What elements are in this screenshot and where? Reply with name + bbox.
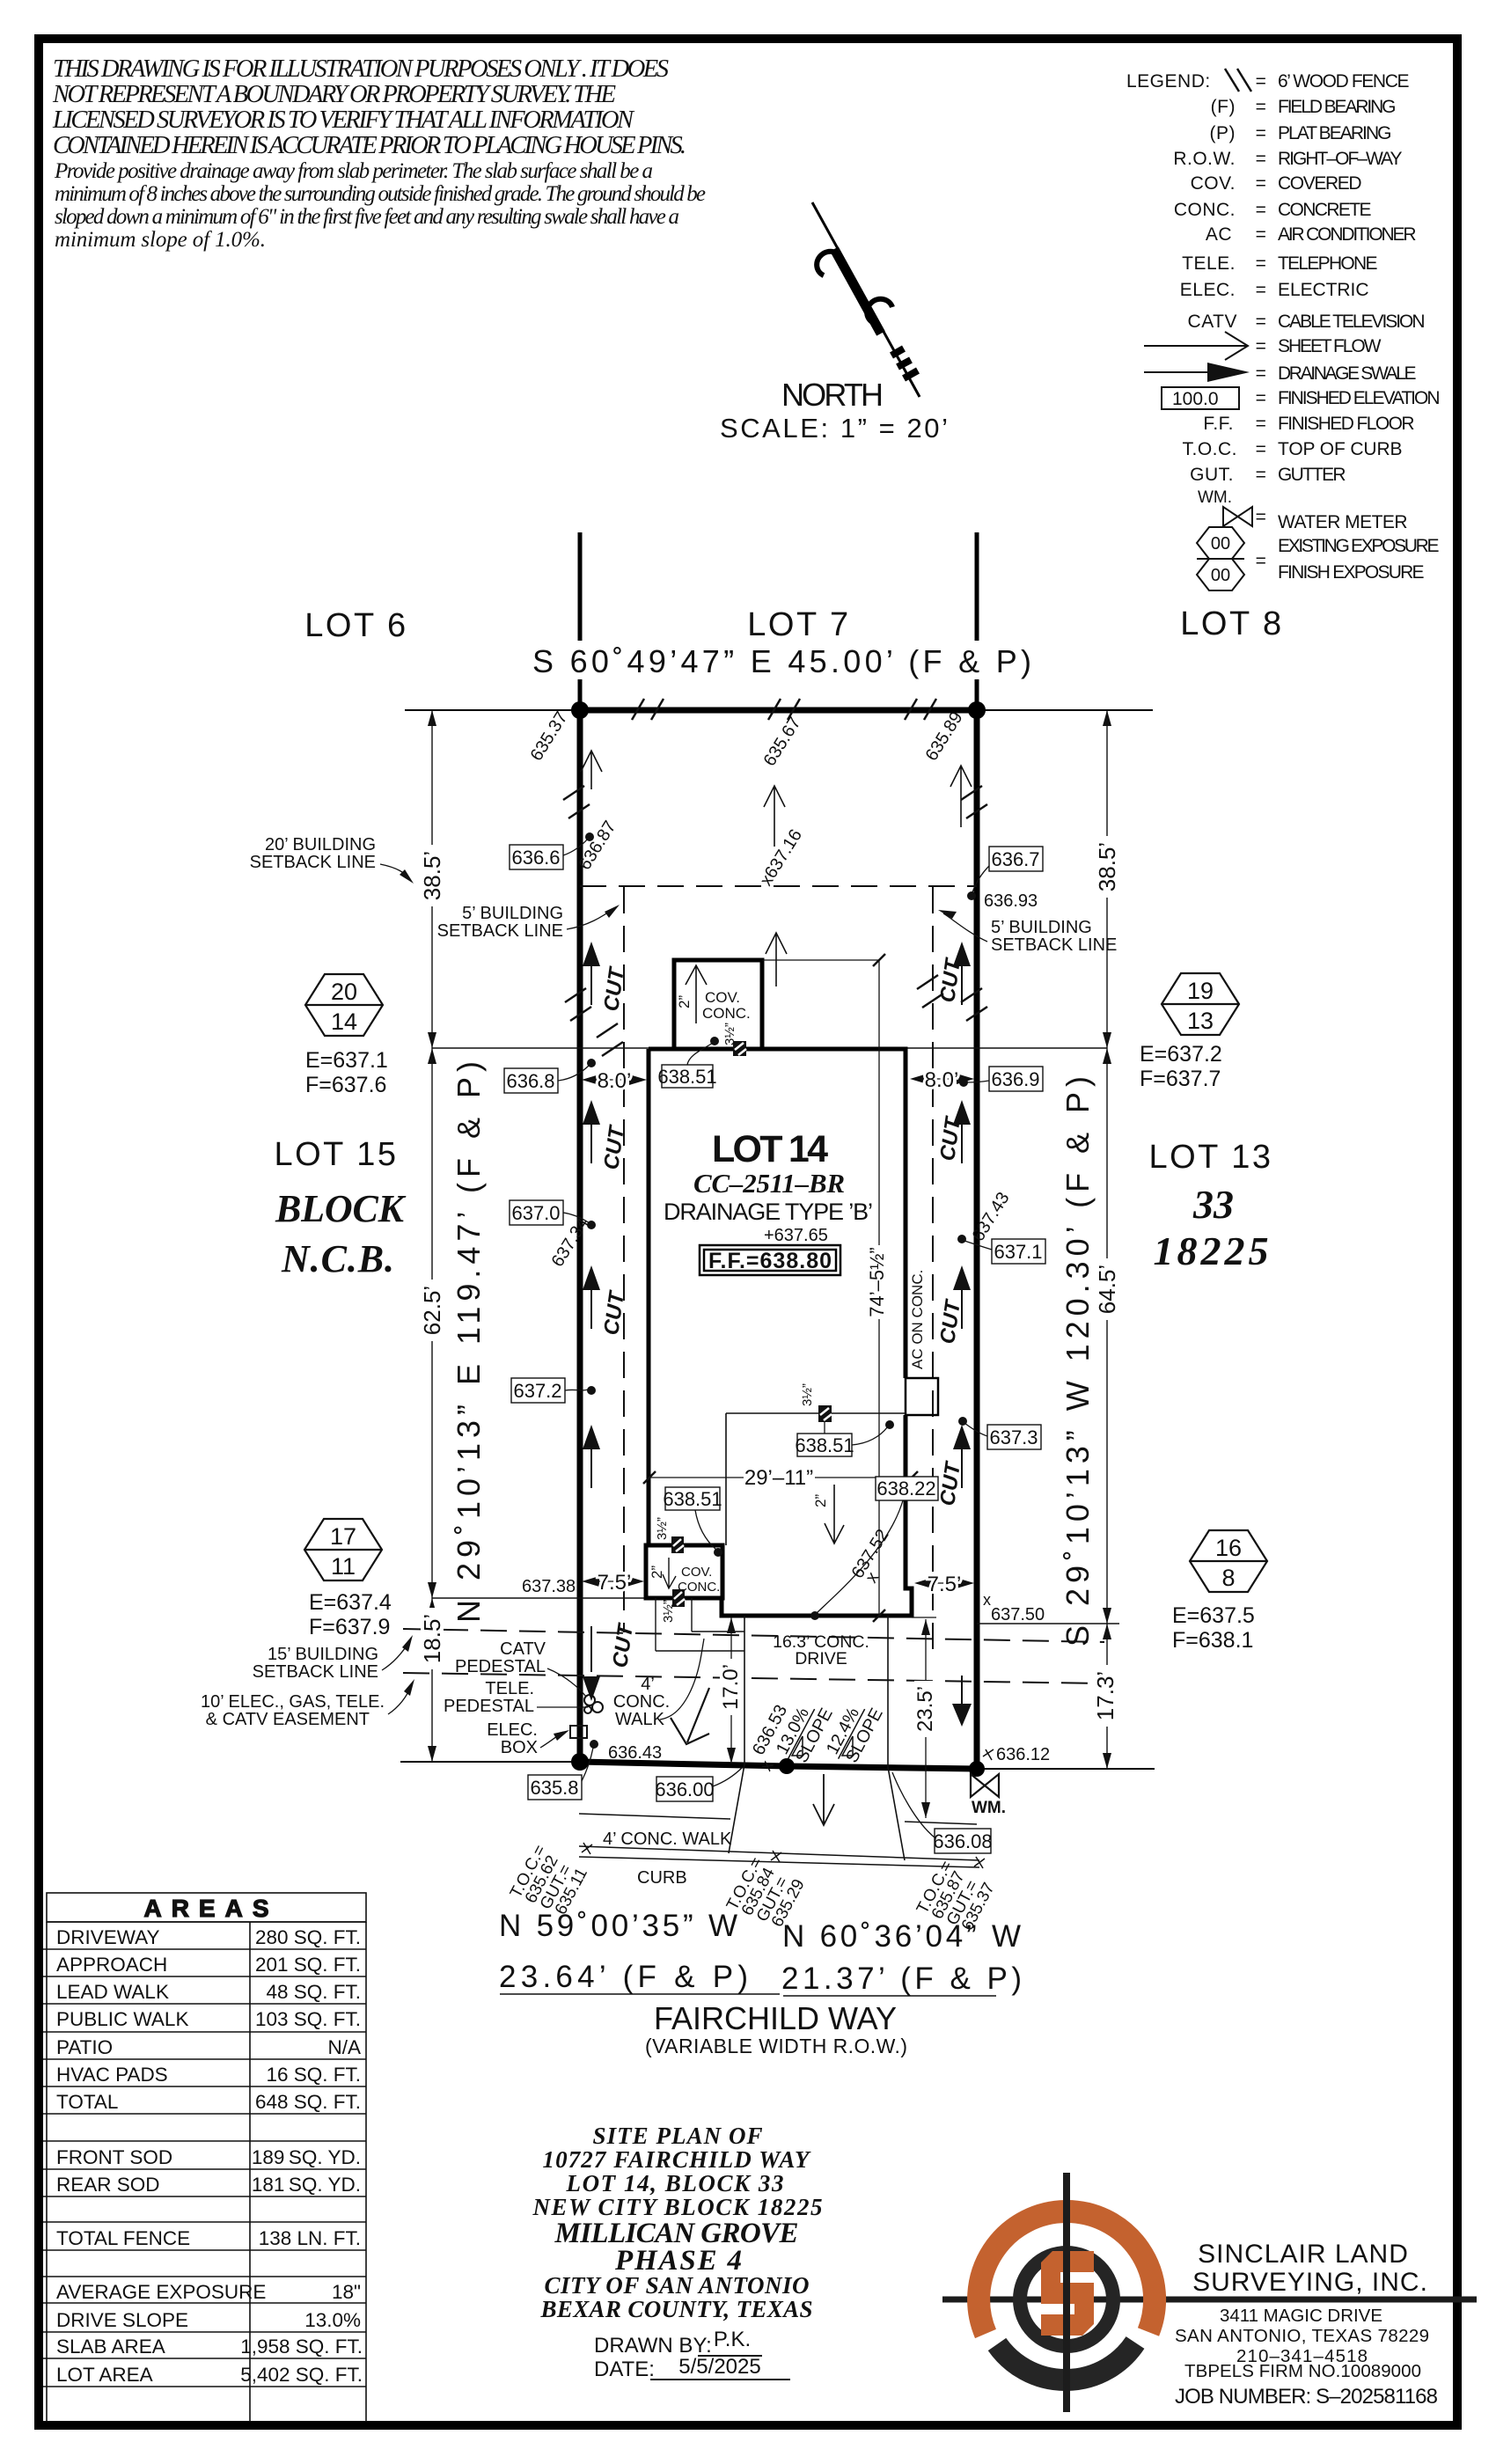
svg-text:636.00: 636.00: [655, 1778, 714, 1800]
svg-text:FIELD BEARING: FIELD BEARING: [1278, 97, 1397, 117]
svg-text:8: 8: [1221, 1565, 1235, 1591]
svg-text:BEXAR COUNTY, TEXAS: BEXAR COUNTY, TEXAS: [540, 2296, 813, 2322]
svg-text:E=637.2: E=637.2: [1140, 1042, 1222, 1067]
svg-text:PEDESTAL: PEDESTAL: [455, 1657, 546, 1676]
svg-text:CONTAINED HEREIN IS ACCURATE P: CONTAINED HEREIN IS ACCURATE PRIOR TO PL…: [53, 132, 686, 159]
svg-text:LOT AREA: LOT AREA: [56, 2364, 153, 2386]
svg-text:F=637.6: F=637.6: [305, 1073, 386, 1097]
svg-text:636.9: 636.9: [991, 1068, 1039, 1090]
svg-text:N 29˚10’13” E 119.47’ (F & P): N 29˚10’13” E 119.47’ (F & P): [451, 1060, 487, 1623]
svg-text:(VARIABLE WIDTH R.O.W.): (VARIABLE WIDTH R.O.W.): [645, 2035, 909, 2057]
svg-text:=: =: [1256, 414, 1267, 434]
svg-text:637.50: 637.50: [991, 1605, 1045, 1624]
svg-text:=: =: [1256, 551, 1267, 571]
svg-text:636.43: 636.43: [608, 1743, 662, 1763]
svg-text:CITY OF SAN ANTONIO: CITY OF SAN ANTONIO: [545, 2272, 810, 2299]
svg-text:minimum slope of 1.0%.: minimum slope of 1.0%.: [55, 228, 266, 252]
svg-text:18.5’: 18.5’: [419, 1614, 445, 1663]
svg-text:29’–11”: 29’–11”: [744, 1466, 813, 1490]
svg-text:TOTAL FENCE: TOTAL FENCE: [56, 2227, 190, 2249]
svg-text:SETBACK LINE: SETBACK LINE: [253, 1662, 378, 1682]
svg-text:APPROACH: APPROACH: [56, 1954, 167, 1976]
svg-text:COVERED: COVERED: [1278, 173, 1362, 194]
svg-text:6’ WOOD FENCE: 6’ WOOD FENCE: [1278, 71, 1410, 92]
svg-text:S 60˚49’47” E 45.00’ (F & P): S 60˚49’47” E 45.00’ (F & P): [532, 643, 1034, 679]
svg-text:WATER METER: WATER METER: [1278, 512, 1408, 532]
svg-text:AC: AC: [1206, 224, 1232, 245]
svg-text:E=637.1: E=637.1: [305, 1048, 388, 1073]
svg-text:R.O.W.: R.O.W.: [1173, 149, 1236, 169]
svg-text:JOB NUMBER: S–202581168: JOB NUMBER: S–202581168: [1175, 2385, 1439, 2409]
svg-text:7.5’: 7.5’: [928, 1573, 962, 1596]
svg-text:636.08: 636.08: [933, 1830, 992, 1852]
svg-text:637.3: 637.3: [989, 1426, 1038, 1448]
svg-text:33: 33: [1192, 1182, 1234, 1227]
svg-text:00: 00: [1211, 534, 1230, 554]
svg-text:5’ BUILDING: 5’ BUILDING: [462, 904, 563, 923]
svg-text:(P): (P): [1210, 123, 1236, 143]
svg-text:11: 11: [331, 1553, 356, 1580]
svg-text:201 SQ. FT.: 201 SQ. FT.: [255, 1954, 361, 1976]
svg-text:E=637.5: E=637.5: [1172, 1603, 1255, 1628]
svg-text:LOT 13: LOT 13: [1148, 1139, 1272, 1176]
svg-text:EXISTING EXPOSURE: EXISTING EXPOSURE: [1278, 536, 1440, 556]
svg-text:5,402 SQ. FT.: 5,402 SQ. FT.: [240, 2364, 363, 2386]
svg-text:3½”: 3½”: [800, 1383, 815, 1406]
svg-text:E=637.4: E=637.4: [309, 1590, 392, 1615]
svg-text:GUT.: GUT.: [1190, 465, 1234, 485]
svg-text:64.5’: 64.5’: [1094, 1265, 1120, 1314]
svg-text:16: 16: [1215, 1535, 1242, 1561]
svg-text:280 SQ. FT.: 280 SQ. FT.: [255, 1926, 361, 1948]
svg-text:TOTAL: TOTAL: [56, 2091, 118, 2113]
svg-text:189 SQ. YD.: 189 SQ. YD.: [252, 2146, 361, 2168]
svg-text:17: 17: [330, 1523, 356, 1550]
svg-text:CATV: CATV: [1188, 312, 1237, 332]
svg-text:138 LN. FT.: 138 LN. FT.: [259, 2227, 361, 2249]
svg-text:636.93: 636.93: [984, 891, 1038, 911]
svg-text:HVAC PADS: HVAC PADS: [56, 2064, 168, 2086]
svg-text:N.C.B.: N.C.B.: [281, 1237, 394, 1280]
svg-text:NORTH: NORTH: [781, 377, 887, 413]
svg-text:8.0’: 8.0’: [925, 1068, 959, 1092]
svg-text:20’ BUILDING: 20’ BUILDING: [265, 835, 376, 854]
svg-text:23.5’: 23.5’: [913, 1686, 937, 1732]
svg-text:=: =: [1256, 465, 1267, 485]
svg-text:AREAS: AREAS: [143, 1895, 278, 1922]
svg-text:=: =: [1256, 363, 1267, 384]
svg-text:14: 14: [331, 1008, 357, 1035]
svg-text:FRONT SOD: FRONT SOD: [56, 2146, 172, 2168]
svg-text:FINISHED ELEVATION: FINISHED ELEVATION: [1278, 388, 1441, 408]
svg-text:2”: 2”: [812, 1494, 829, 1507]
svg-text:CONC.: CONC.: [613, 1692, 670, 1712]
svg-text:DRAINAGE SWALE: DRAINAGE SWALE: [1278, 363, 1417, 384]
svg-text:PLAT BEARING: PLAT BEARING: [1278, 123, 1392, 143]
svg-text:38.5’: 38.5’: [419, 851, 445, 900]
svg-text:=: =: [1256, 173, 1267, 194]
svg-text:21.37’ (F & P): 21.37’ (F & P): [781, 1962, 1024, 1996]
svg-text:=: =: [1256, 200, 1267, 220]
svg-text:635.8: 635.8: [530, 1777, 578, 1799]
svg-text:636.6: 636.6: [511, 847, 560, 869]
svg-text:LEAD WALK: LEAD WALK: [56, 1981, 169, 2003]
svg-text:PUBLIC WALK: PUBLIC WALK: [56, 2008, 188, 2030]
svg-text:4’ CONC. WALK: 4’ CONC. WALK: [603, 1830, 732, 1849]
svg-text:CURB: CURB: [637, 1868, 687, 1888]
svg-text:637.2: 637.2: [513, 1380, 561, 1402]
svg-text:THIS DRAWING IS FOR ILLUSTRATI: THIS DRAWING IS FOR ILLUSTRATION PURPOSE…: [53, 55, 669, 83]
svg-text:NEW CITY BLOCK 18225: NEW CITY BLOCK 18225: [532, 2194, 823, 2220]
svg-text:WM.: WM.: [972, 1799, 1006, 1817]
svg-text:NOT REPRESENT A BOUNDARY OR PR: NOT REPRESENT A BOUNDARY OR PROPERTY SUR…: [52, 81, 616, 108]
svg-text:PATIO: PATIO: [56, 2036, 113, 2058]
svg-text:FINISH EXPOSURE: FINISH EXPOSURE: [1278, 562, 1425, 583]
svg-text:=: =: [1256, 280, 1267, 300]
svg-text:T.O.C.: T.O.C.: [1182, 439, 1237, 459]
svg-text:62.5’: 62.5’: [419, 1286, 445, 1335]
svg-text:SHEET FLOW: SHEET FLOW: [1278, 336, 1382, 356]
svg-text:=: =: [1256, 388, 1267, 408]
svg-text:F.F.: F.F.: [1203, 414, 1234, 434]
svg-text:18": 18": [332, 2281, 361, 2303]
svg-text:1,958 SQ. FT.: 1,958 SQ. FT.: [240, 2336, 363, 2358]
svg-text:CONC.: CONC.: [702, 1005, 751, 1022]
svg-text:74’–5½”: 74’–5½”: [866, 1247, 888, 1317]
svg-text:SLAB AREA: SLAB AREA: [56, 2336, 165, 2358]
svg-text:TELEPHONE: TELEPHONE: [1278, 253, 1378, 274]
svg-text:WM.: WM.: [1198, 488, 1232, 507]
svg-text:648 SQ. FT.: 648 SQ. FT.: [255, 2091, 361, 2113]
svg-text:LOT 6: LOT 6: [304, 607, 407, 644]
svg-text:CONC.: CONC.: [1174, 200, 1236, 220]
svg-text:BOX: BOX: [501, 1738, 538, 1757]
svg-text:20: 20: [331, 979, 357, 1005]
svg-text:TELE.: TELE.: [1182, 253, 1236, 274]
svg-text:P.K.: P.K.: [714, 2328, 751, 2351]
svg-text:TOP OF CURB: TOP OF CURB: [1278, 439, 1403, 459]
svg-text:LOT 8: LOT 8: [1180, 605, 1283, 642]
svg-text:LOT 14: LOT 14: [712, 1128, 832, 1170]
svg-text:17.3’: 17.3’: [1092, 1671, 1118, 1720]
svg-text:100.0: 100.0: [1172, 389, 1219, 409]
svg-text:181 SQ. YD.: 181 SQ. YD.: [252, 2174, 361, 2196]
svg-text:SETBACK LINE: SETBACK LINE: [250, 853, 376, 872]
svg-text:CC–2511–BR: CC–2511–BR: [693, 1168, 845, 1199]
svg-text:BLOCK: BLOCK: [275, 1187, 407, 1230]
svg-text:637.1: 637.1: [994, 1241, 1042, 1263]
svg-text:636.7: 636.7: [991, 848, 1039, 870]
svg-text:+637.65: +637.65: [764, 1226, 828, 1245]
svg-text:GUTTER: GUTTER: [1278, 465, 1346, 485]
svg-text:7.5’: 7.5’: [598, 1571, 632, 1595]
svg-text:SURVEYING, INC.: SURVEYING, INC.: [1192, 2268, 1428, 2297]
svg-text:F=637.7: F=637.7: [1140, 1067, 1221, 1091]
svg-text:minimum of 8 inches above the: minimum of 8 inches above the surroundin…: [55, 182, 706, 206]
svg-text:8.0’: 8.0’: [598, 1069, 632, 1093]
svg-text:4’: 4’: [641, 1675, 655, 1694]
svg-text:PEDESTAL: PEDESTAL: [444, 1697, 534, 1716]
svg-text:00: 00: [1211, 566, 1230, 585]
svg-text:=: =: [1256, 149, 1267, 169]
svg-text:2”: 2”: [676, 995, 693, 1008]
svg-text:REAR SOD: REAR SOD: [56, 2174, 160, 2196]
svg-text:5’ BUILDING: 5’ BUILDING: [991, 918, 1092, 937]
svg-text:=: =: [1256, 123, 1267, 143]
svg-text:=: =: [1256, 312, 1267, 332]
svg-text:15’ BUILDING: 15’ BUILDING: [268, 1645, 378, 1664]
svg-text:13.0%: 13.0%: [304, 2309, 361, 2331]
svg-text:COV.: COV.: [1191, 173, 1236, 194]
svg-text:ELEC.: ELEC.: [1180, 280, 1236, 300]
svg-text:CONCRETE: CONCRETE: [1278, 200, 1372, 220]
svg-text:LICENSED SURVEYOR IS TO VERIFY: LICENSED SURVEYOR IS TO VERIFY THAT ALL …: [52, 106, 635, 134]
svg-text:19: 19: [1187, 978, 1214, 1004]
svg-text:SITE PLAN OF: SITE PLAN OF: [593, 2123, 763, 2149]
svg-text:638.22: 638.22: [876, 1478, 935, 1500]
svg-text:SINCLAIR LAND: SINCLAIR LAND: [1198, 2240, 1409, 2269]
svg-text:17.0’: 17.0’: [719, 1664, 743, 1710]
svg-text:& CATV EASEMENT: & CATV EASEMENT: [206, 1710, 370, 1729]
svg-text:FAIRCHILD WAY: FAIRCHILD WAY: [654, 2000, 902, 2036]
svg-text:LOT 15: LOT 15: [274, 1136, 398, 1173]
svg-text:F.F.=638.80: F.F.=638.80: [708, 1249, 832, 1273]
svg-text:DRIVE: DRIVE: [795, 1649, 847, 1668]
svg-text:RIGHT–OF–WAY: RIGHT–OF–WAY: [1278, 149, 1403, 169]
svg-text:DRAWN BY:: DRAWN BY:: [594, 2334, 712, 2358]
svg-text:=: =: [1256, 97, 1267, 117]
svg-text:SCALE: 1” = 20’: SCALE: 1” = 20’: [720, 413, 950, 444]
svg-text:13: 13: [1187, 1008, 1214, 1034]
svg-text:SETBACK LINE: SETBACK LINE: [437, 921, 563, 941]
svg-text:COV.: COV.: [681, 1565, 712, 1580]
svg-text:18225: 18225: [1154, 1228, 1269, 1273]
svg-text:10’ ELEC., GAS, TELE.: 10’ ELEC., GAS, TELE.: [201, 1692, 385, 1712]
svg-text:3½”: 3½”: [655, 1517, 670, 1540]
svg-text:DATE:: DATE:: [594, 2358, 655, 2381]
svg-text:WALK: WALK: [615, 1710, 665, 1729]
svg-text:16 SQ. FT.: 16 SQ. FT.: [266, 2064, 361, 2086]
svg-text:x: x: [983, 1591, 991, 1609]
svg-text:5/5/2025: 5/5/2025: [678, 2355, 760, 2379]
svg-text:10727 FAIRCHILD WAY: 10727 FAIRCHILD WAY: [543, 2146, 812, 2173]
svg-text:S 29˚10’13” W 120.30’ (F & P): S 29˚10’13” W 120.30’ (F & P): [1060, 1074, 1096, 1646]
svg-text:F=637.9: F=637.9: [309, 1615, 390, 1639]
svg-text:=: =: [1256, 224, 1267, 245]
svg-text:sloped down a minimum of 6" in: sloped down a minimum of 6" in the first…: [55, 205, 679, 229]
svg-text:N 60˚36’04” W: N 60˚36’04” W: [782, 1919, 1023, 1954]
svg-text:CABLE TELEVISION: CABLE TELEVISION: [1278, 312, 1426, 332]
svg-text:CATV: CATV: [500, 1639, 546, 1659]
svg-text:SETBACK LINE: SETBACK LINE: [991, 935, 1117, 955]
svg-text:3411 MAGIC DRIVE: 3411 MAGIC DRIVE: [1220, 2306, 1383, 2326]
svg-text:DRIVE SLOPE: DRIVE SLOPE: [56, 2309, 188, 2331]
svg-text:=: =: [1256, 507, 1267, 527]
svg-text:23.64’ (F & P): 23.64’ (F & P): [499, 1960, 751, 1994]
svg-text:LOT 7: LOT 7: [747, 606, 850, 643]
svg-text:LEGEND:: LEGEND:: [1126, 71, 1211, 92]
svg-text:FINISHED FLOOR: FINISHED FLOOR: [1278, 414, 1415, 434]
svg-text:=: =: [1256, 253, 1267, 274]
svg-text:TELE.: TELE.: [485, 1679, 534, 1698]
svg-text:637.38: 637.38: [522, 1577, 576, 1596]
svg-text:2”: 2”: [649, 1566, 665, 1579]
svg-text:=: =: [1256, 439, 1267, 459]
svg-text:SAN ANTONIO, TEXAS 78229: SAN ANTONIO, TEXAS 78229: [1175, 2326, 1430, 2346]
svg-text:=: =: [1256, 336, 1267, 356]
svg-text:(F): (F): [1211, 97, 1236, 117]
svg-text:N 59˚00’35” W: N 59˚00’35” W: [499, 1909, 740, 1943]
svg-text:637.0: 637.0: [511, 1202, 560, 1224]
svg-text:TBPELS FIRM NO.10089000: TBPELS FIRM NO.10089000: [1184, 2361, 1422, 2381]
svg-text:ELEC.: ELEC.: [487, 1720, 538, 1740]
svg-text:COV.: COV.: [705, 989, 740, 1006]
svg-text:638.51: 638.51: [795, 1434, 854, 1456]
svg-text:=: =: [1256, 71, 1267, 92]
svg-text:F=638.1: F=638.1: [1172, 1628, 1253, 1653]
svg-text:DRAINAGE TYPE ’B’: DRAINAGE TYPE ’B’: [664, 1199, 873, 1225]
svg-text:Provide positive drainage away: Provide positive drainage away from slab…: [54, 159, 653, 183]
svg-text:638.51: 638.51: [663, 1488, 722, 1510]
svg-text:48 SQ. FT.: 48 SQ. FT.: [266, 1981, 361, 2003]
svg-text:LOT 14, BLOCK 33: LOT 14, BLOCK 33: [566, 2170, 784, 2196]
svg-text:DRIVEWAY: DRIVEWAY: [56, 1926, 160, 1948]
svg-text:636.8: 636.8: [506, 1070, 554, 1092]
svg-text:AIR CONDITIONER: AIR CONDITIONER: [1278, 224, 1417, 245]
svg-text:636.12: 636.12: [996, 1745, 1050, 1764]
svg-text:AC ON CONC.: AC ON CONC.: [909, 1270, 926, 1369]
svg-text:638.51: 638.51: [657, 1066, 716, 1088]
svg-text:N/A: N/A: [327, 2036, 361, 2058]
svg-text:38.5’: 38.5’: [1094, 842, 1120, 891]
svg-text:AVERAGE EXPOSURE: AVERAGE EXPOSURE: [56, 2281, 266, 2303]
svg-text:ELECTRIC: ELECTRIC: [1278, 280, 1369, 300]
svg-text:103 SQ. FT.: 103 SQ. FT.: [255, 2008, 361, 2030]
